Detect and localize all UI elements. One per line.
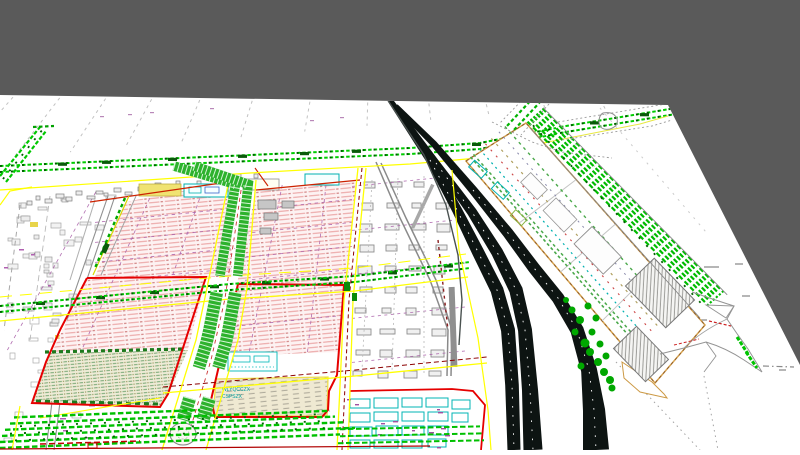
svg-text:CSPSZX: CSPSZX [222,394,243,400]
